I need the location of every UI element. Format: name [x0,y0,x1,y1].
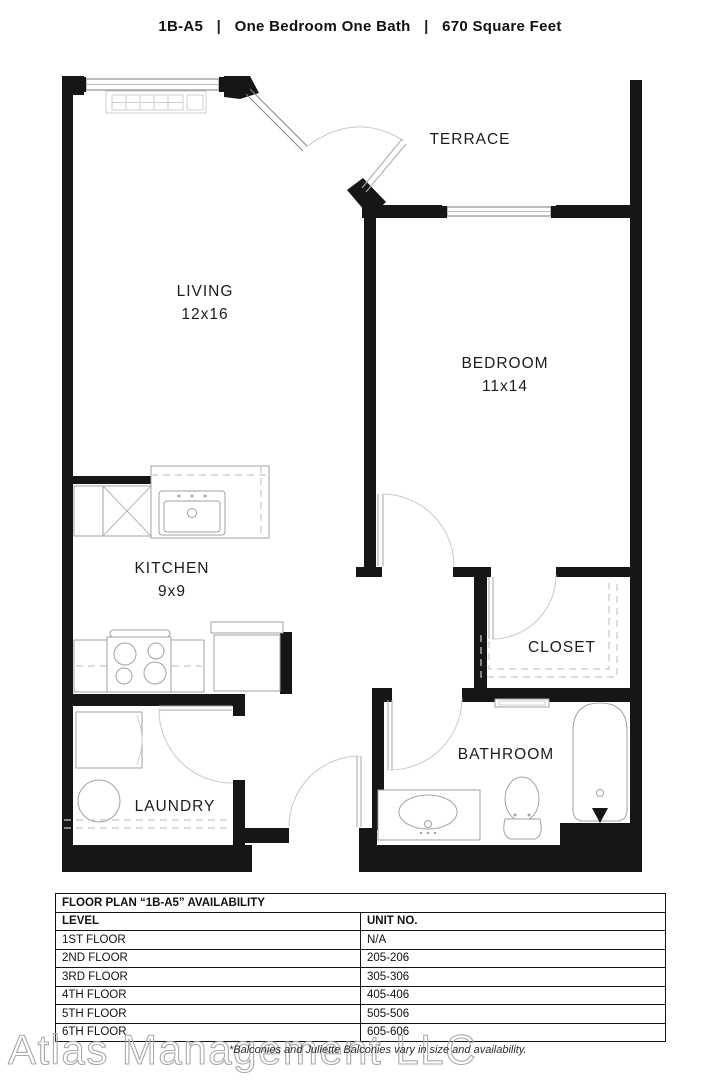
unit-cell: 505-506 [361,1005,666,1024]
closet-door [489,575,556,639]
table-title: FLOOR PLAN “1B-A5” AVAILABILITY [56,894,666,913]
bathroom-door [388,698,462,770]
living-window [81,77,224,92]
level-cell: 3RD FLOOR [56,968,361,987]
bathroom-shelf-niche [495,699,549,707]
kitchen-stove [74,630,204,692]
table-row: 4TH FLOOR 405-406 [56,986,666,1005]
laundry-shelf-dashes [64,820,230,828]
unit-cell: 305-306 [361,968,666,987]
terrace-label: TERRACE [429,131,510,148]
bedroom-window [442,206,556,218]
living-label: LIVING [177,283,234,300]
closet-label: CLOSET [528,639,596,656]
bathtub [573,703,627,823]
table-row: 5TH FLOOR 505-506 [56,1005,666,1024]
table-row: 1ST FLOOR N/A [56,931,666,950]
kitchen-refrigerator [74,486,151,536]
walls [62,76,642,872]
kitchen-label: KITCHEN [134,560,209,577]
level-cell: 4TH FLOOR [56,986,361,1005]
unit-cell: 405-406 [361,986,666,1005]
bathroom-vanity-sink [378,790,480,840]
unit-cell: N/A [361,931,666,950]
bathroom-label: BATHROOM [458,746,554,763]
closet-shelf-dashes [481,583,617,677]
kitchen-dimensions: 9x9 [158,583,186,600]
floor-plan-drawing: TERRACE LIVING 12x16 BEDROOM 11x14 KITCH… [0,0,720,890]
toilet [504,777,541,839]
kitchen-sink-counter [151,466,269,538]
laundry-label: LAUNDRY [135,798,216,815]
bedroom-label: BEDROOM [461,355,548,372]
column-header-level: LEVEL [56,912,361,931]
availability-table: FLOOR PLAN “1B-A5” AVAILABILITY LEVEL UN… [55,893,666,1042]
level-cell: 1ST FLOOR [56,931,361,950]
table-title-row: FLOOR PLAN “1B-A5” AVAILABILITY [56,894,666,913]
column-header-unit: UNIT NO. [361,912,666,931]
laundry-door [159,706,233,783]
balcony-disclaimer: *Balconies and Juliette Balconies vary i… [229,1044,527,1056]
laundry-washer [76,712,142,768]
terrace-angled-panel [246,89,307,151]
laundry-tub [78,780,120,822]
table-row: 2ND FLOOR 205-206 [56,949,666,968]
bedroom-door [378,494,454,566]
level-cell: 5TH FLOOR [56,1005,361,1024]
living-dimensions: 12x16 [181,306,228,323]
bedroom-dimensions: 11x14 [482,378,528,395]
living-window-seat [106,91,206,113]
level-cell: 2ND FLOOR [56,949,361,968]
terrace-door [306,127,406,192]
unit-cell: 205-206 [361,949,666,968]
floor-plan-page: 1B-A5 | One Bedroom One Bath | 670 Squar… [0,0,720,1080]
table-row: 3RD FLOOR 305-306 [56,968,666,987]
table-header-row: LEVEL UNIT NO. [56,912,666,931]
kitchen-dishwasher [211,622,283,691]
entry-door [289,756,361,827]
